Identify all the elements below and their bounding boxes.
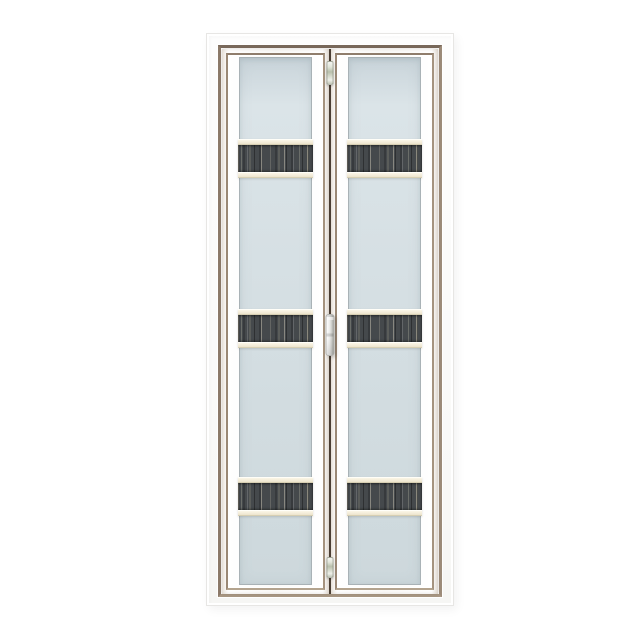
cream-rail <box>238 510 313 516</box>
cream-rail <box>347 172 422 178</box>
cream-rail <box>347 342 422 348</box>
door-leaf-left <box>222 49 329 594</box>
product-photo-bifold-door <box>0 0 640 640</box>
cream-rail <box>238 172 313 178</box>
woodgrain-strip <box>347 315 422 342</box>
woodgrain-strip <box>238 145 313 172</box>
woodgrain-strip <box>238 315 313 342</box>
decor-row <box>347 477 422 516</box>
decor-row <box>238 139 313 178</box>
door-handle <box>326 314 335 356</box>
top-hinge <box>327 61 334 85</box>
cream-rail <box>238 342 313 348</box>
door-leaves <box>222 49 438 594</box>
woodgrain-strip <box>347 145 422 172</box>
bottom-hinge <box>327 557 334 578</box>
woodgrain-strip <box>238 483 313 510</box>
door-frame <box>206 33 454 606</box>
woodgrain-strip <box>347 483 422 510</box>
decor-row <box>347 139 422 178</box>
door-leaf-right <box>331 49 438 594</box>
cream-rail <box>347 510 422 516</box>
decor-row <box>347 309 422 348</box>
decor-row <box>238 309 313 348</box>
decor-row <box>238 477 313 516</box>
